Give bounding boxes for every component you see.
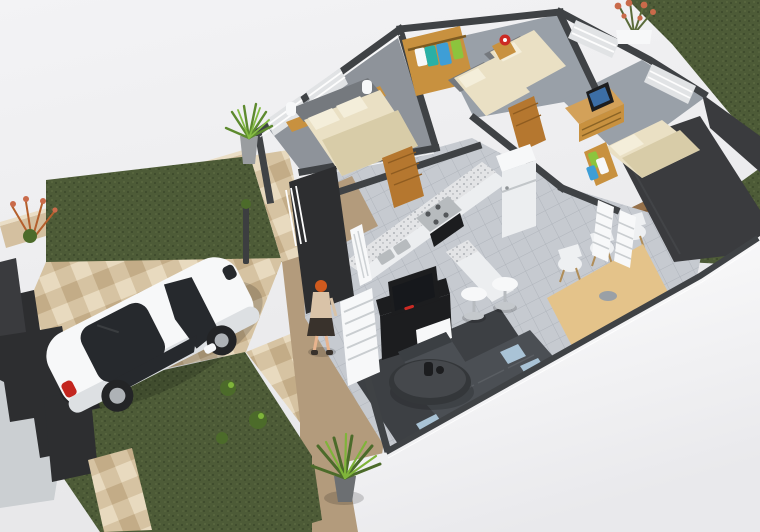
wall-lamp xyxy=(286,102,296,116)
woman-hair xyxy=(315,280,327,292)
red-wall-decor-center xyxy=(503,38,507,42)
fridge-front xyxy=(502,160,536,238)
fridge-handle xyxy=(505,186,509,190)
shrub xyxy=(220,380,236,396)
table-bowl xyxy=(436,366,444,374)
shrub-highlight xyxy=(228,382,234,388)
window-planter xyxy=(616,30,652,44)
stool-seat xyxy=(461,287,487,301)
woman-top xyxy=(310,292,332,318)
shrub xyxy=(249,411,267,429)
floorplan-render xyxy=(0,0,760,532)
stool-base xyxy=(464,312,484,320)
sapling-top xyxy=(241,199,251,209)
sapling-trunk xyxy=(243,206,249,264)
floorplan-scene xyxy=(0,0,760,532)
stool-seat xyxy=(492,277,518,291)
fridge xyxy=(496,144,536,238)
woman-shoe xyxy=(311,350,318,355)
stool-base xyxy=(495,302,515,310)
plant-pot xyxy=(240,136,258,164)
shrub-highlight xyxy=(258,413,264,419)
shrub-base xyxy=(23,229,37,243)
woman-shoe xyxy=(326,350,333,355)
table-centerpiece xyxy=(599,291,617,301)
shrub xyxy=(216,432,228,444)
table-vase xyxy=(424,362,433,376)
wall-lamp xyxy=(362,80,372,94)
woman-skirt xyxy=(307,318,335,336)
